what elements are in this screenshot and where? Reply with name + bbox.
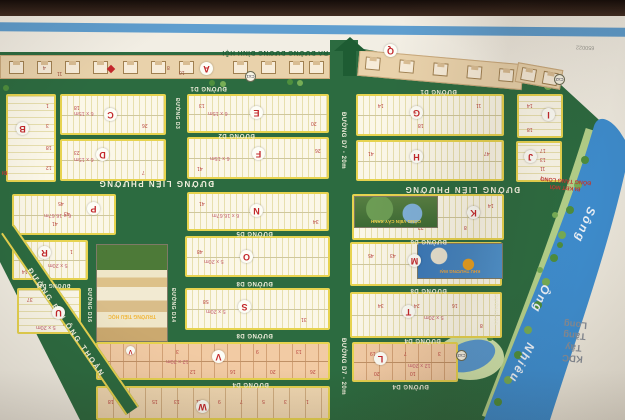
block-c-lot-size: 6 x 15m	[74, 110, 94, 116]
block-m-label: M	[408, 254, 421, 267]
lot-number: 3	[176, 348, 179, 354]
street-d1-label-west: ĐƯỜNG D1	[190, 85, 227, 91]
block-b: 131812	[6, 94, 56, 182]
block-p-lot-size: 6 x 16.67m	[44, 212, 71, 218]
exit-street-label: RA ĐƯỜNG DƯƠNG ĐÌNH HỘI	[222, 49, 328, 56]
house-number: 8	[167, 64, 170, 70]
block-v-label-secondary: V	[126, 346, 135, 355]
block-q-label: Q	[384, 44, 397, 57]
block-b-label: B	[16, 122, 29, 135]
block-a-label: A	[200, 62, 213, 75]
house-footprint-icon	[93, 61, 108, 74]
street-d11-label: ĐƯỜNG D11	[36, 282, 70, 288]
block-f-lot-size: 6 x 15m	[210, 155, 230, 161]
park-caption: CÔNG VIÊN CÂY XANH	[355, 219, 437, 224]
lot-number: 41	[368, 150, 374, 156]
lot-number: 1	[70, 248, 73, 254]
street-d9-label: ĐƯỜNG D9	[492, 294, 498, 325]
park-photo-inset: CÔNG VIÊN CÂY XANH	[354, 196, 438, 228]
lot-number: 7	[142, 169, 145, 175]
di-direction-note: ĐI	[2, 168, 8, 176]
lot-number: 18	[527, 126, 533, 132]
lot-number: 48	[197, 248, 203, 254]
lot-number: 34	[313, 218, 319, 224]
lot-number: 15	[152, 398, 158, 404]
school-photo-inset: TRƯỜNG TIỂU HỌC	[96, 244, 168, 342]
street-d14-label: ĐƯỜNG D14	[170, 288, 176, 323]
house-footprint-icon	[261, 61, 276, 74]
block-s-lot-size: 5 x 20m	[206, 308, 226, 314]
lot-number: 31	[301, 316, 307, 322]
house-footprint-icon	[65, 61, 80, 74]
cx2-marker: Cx2	[554, 74, 565, 85]
block-d-lot-size: 6 x 15m	[74, 156, 94, 162]
block-l: 19732010	[352, 342, 458, 382]
block-c-label: C	[104, 108, 117, 121]
block-o-lot-size: 5 x 20m	[204, 258, 224, 264]
block-k-label: K	[467, 206, 480, 219]
block-v-label: V	[212, 350, 225, 363]
lot-number: 16	[230, 368, 236, 374]
block-d-label: D	[96, 148, 109, 161]
lot-number: 13	[296, 348, 302, 354]
school-caption: TRƯỜNG TIỂU HỌC	[97, 313, 167, 319]
existing-houses-strip: 411810	[0, 55, 330, 79]
lot-number: 13	[174, 398, 180, 404]
neighbor-area-label: KDC Tây Tăng Long	[546, 316, 602, 366]
lot-number: 5	[262, 398, 265, 404]
lot-number: 37	[27, 296, 33, 302]
house-footprint-icon	[9, 61, 24, 74]
street-d3-label: ĐƯỜNG D3	[174, 98, 180, 129]
block-p-label: P	[87, 202, 100, 215]
house-number: 4	[43, 64, 46, 70]
house-number: 10	[179, 69, 185, 75]
block-g: 111418	[356, 94, 504, 136]
lot-number: 14	[488, 202, 494, 208]
plaza-photo-inset: KHU THƯƠNG MẠI	[417, 243, 503, 279]
lot-number: 16	[452, 302, 458, 308]
street-d8-label-c: ĐƯỜNG D8	[236, 332, 273, 338]
lot-number: 12	[190, 368, 196, 374]
lot-number: 3	[438, 350, 441, 356]
block-o-label: O	[240, 250, 253, 263]
lot-number: 41	[199, 200, 205, 206]
lot-number: 18	[418, 122, 424, 128]
lot-number: 18	[46, 144, 52, 150]
street-d5-label: ĐƯỜNG D5	[236, 230, 273, 236]
north-exit-arrow-icon	[334, 37, 366, 51]
street-d2-label: ĐƯỜNG D2	[218, 132, 255, 138]
cx1-marker: Cx1	[245, 71, 256, 82]
corner-code: 650022	[576, 44, 595, 51]
street-d6-label: ĐƯỜNG D6	[410, 238, 447, 244]
lot-number: 13	[199, 102, 205, 108]
block-s-label: S	[238, 300, 251, 313]
house-footprint-icon	[520, 67, 537, 82]
lot-number: 41	[52, 220, 58, 226]
lot-number: 20	[270, 368, 276, 374]
lot-number: 9	[256, 348, 259, 354]
lot-number: 24	[414, 302, 420, 308]
cx3-marker: Cx3	[456, 350, 467, 361]
lot-number: 14	[378, 102, 384, 108]
lot-number: 41	[197, 165, 203, 171]
lot-number: 3	[284, 398, 287, 404]
house-footprint-icon	[309, 61, 324, 74]
lot-number: 7	[240, 398, 243, 404]
lot-number: 18	[108, 398, 114, 404]
house-footprint-icon	[433, 62, 449, 76]
block-l-label: L	[374, 352, 387, 365]
block-e-label: E	[250, 106, 263, 119]
lot-number: 58	[203, 298, 209, 304]
lot-number: 7	[404, 350, 407, 356]
lot-number: 8	[464, 224, 467, 230]
street-d4-label-b: ĐƯỜNG D4	[232, 381, 269, 387]
house-number: 11	[57, 70, 62, 76]
lot-number: 45	[368, 252, 374, 258]
house-footprint-icon	[399, 59, 415, 73]
house-footprint-icon	[466, 65, 482, 79]
house-footprint-icon	[498, 68, 514, 82]
lot-number: 8	[480, 322, 483, 328]
block-w-label: W	[196, 400, 209, 413]
lot-number: 12	[46, 164, 52, 170]
lot-number: 11	[476, 102, 481, 108]
block-n-label: N	[250, 204, 263, 217]
block-r-lot-size: 5 x 20m	[48, 262, 68, 268]
lot-number: 34	[378, 302, 384, 308]
street-d8-label-a: ĐƯỜNG D8	[236, 280, 273, 286]
house-footprint-icon	[365, 56, 381, 70]
lot-number: 20	[311, 120, 317, 126]
lot-number: 1	[306, 398, 309, 404]
lot-number: 20	[374, 370, 380, 376]
street-d1-label-east: ĐƯỜNG D1	[420, 88, 457, 94]
lot-number: 23	[74, 149, 80, 155]
block-h: 4741	[356, 140, 504, 181]
street-d16-label: ĐƯỜNG D16	[86, 288, 92, 323]
lot-number: 26	[310, 368, 316, 374]
lot-number: 47	[484, 150, 490, 156]
block-i: 1418	[517, 94, 563, 138]
block-v-lot-size: 12 x 20m	[166, 358, 189, 364]
lot-number: 9	[218, 398, 221, 404]
photo-of-subdivision-map: 411810 A Q RA ĐƯỜNG DƯƠNG ĐÌNH HỘI 13181…	[0, 0, 625, 420]
street-d8-label-b: ĐƯỜNG D8	[410, 287, 447, 293]
block-e-lot-size: 6 x 15m	[208, 110, 228, 116]
plaza-caption: KHU THƯƠNG MẠI	[418, 269, 502, 274]
house-footprint-icon	[289, 61, 304, 74]
lot-number: 26	[315, 147, 321, 153]
block-l-lot-size: 12 x 20m	[408, 362, 431, 368]
north-exit-arrow-stem	[343, 50, 356, 76]
lot-number: 1	[46, 102, 49, 108]
block-h-label: H	[410, 150, 423, 163]
lot-number: 10	[410, 370, 416, 376]
block-t-label: T	[402, 305, 415, 318]
lot-number: 17	[540, 147, 546, 153]
block-o: 48	[185, 236, 330, 277]
lot-number: 3	[46, 122, 49, 128]
lot-number: 26	[142, 122, 148, 128]
block-u-label: U	[52, 306, 65, 319]
lot-number: 13	[540, 156, 546, 162]
block-u-lot-size: 5 x 20m	[36, 324, 56, 330]
block-g-label: G	[410, 106, 423, 119]
lot-number: 45	[58, 200, 64, 206]
street-d4-label-c: ĐƯỜNG D4	[392, 383, 429, 389]
house-footprint-icon	[123, 61, 138, 74]
block-r-label: R	[38, 246, 51, 259]
street-lien-phuong-label-west: ĐƯỜNG LIÊN PHƯỜNG	[98, 179, 214, 188]
street-d7-label-south: ĐƯỜNG D7 - 20m	[340, 338, 346, 395]
street-d4-label-a: ĐƯỜNG D4	[404, 337, 441, 343]
block-i-label: I	[542, 108, 555, 121]
block-t-lot-size: 5 x 20m	[424, 314, 444, 320]
block-j-label: J	[524, 150, 537, 163]
street-lien-phuong-label-east: ĐƯỜNG LIÊN PHƯỜNG	[404, 185, 520, 194]
block-n-lot-size: 6 x 16.67m	[212, 212, 239, 218]
lot-number: 14	[527, 102, 533, 108]
house-footprint-icon	[151, 61, 166, 74]
block-f-label: F	[252, 147, 265, 160]
lot-number: 43	[390, 252, 396, 258]
street-d7-label-north: ĐƯỜNG D7 - 20m	[340, 112, 346, 169]
lot-number: 11	[540, 165, 545, 171]
